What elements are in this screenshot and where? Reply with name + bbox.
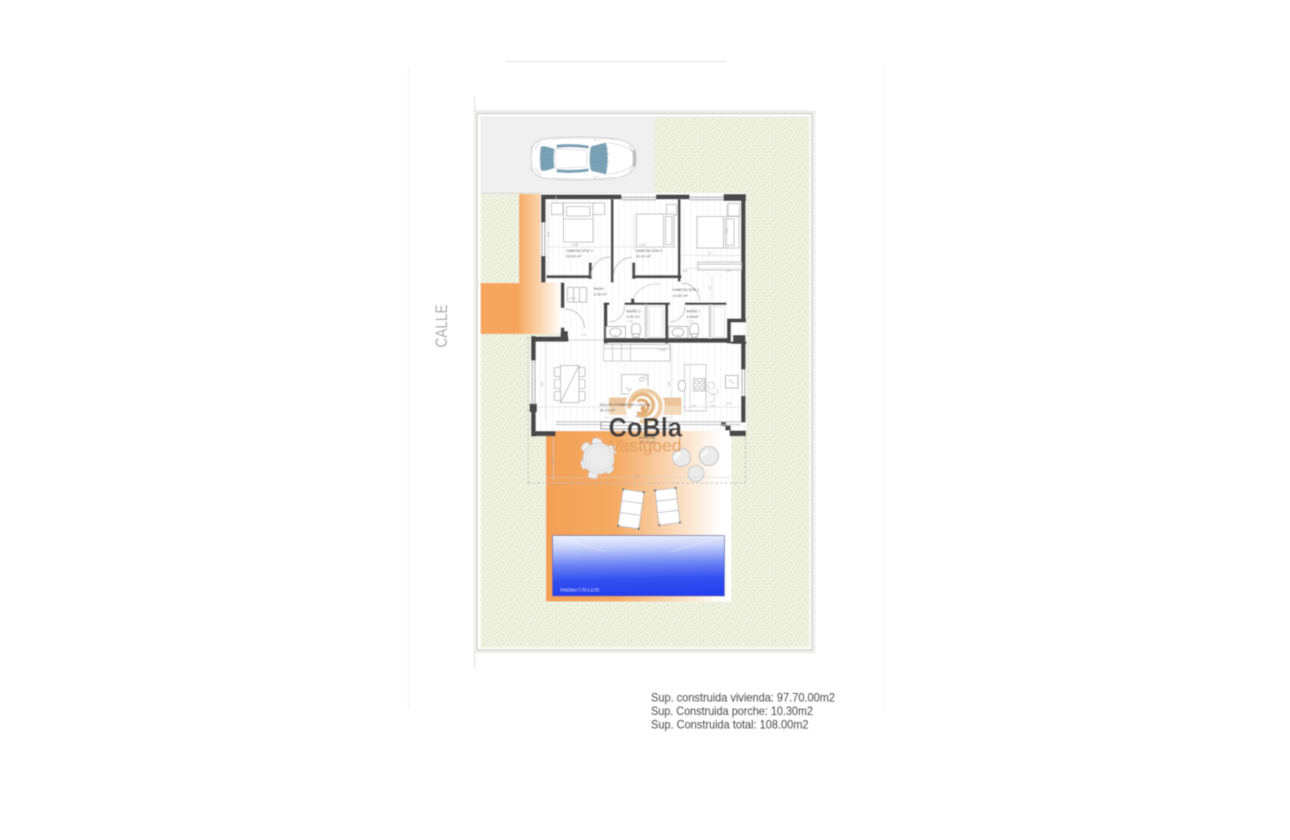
svg-text:BAÑO 2: BAÑO 2 — [627, 309, 641, 314]
svg-text:Sup. Construida porche: 10.30m: Sup. Construida porche: 10.30m2 — [651, 705, 813, 718]
svg-text:10.00 m²: 10.00 m² — [566, 254, 582, 259]
svg-text:CALLE: CALLE — [432, 305, 451, 348]
svg-text:HABITACIÓN 3: HABITACIÓN 3 — [566, 248, 593, 253]
svg-text:1.6: 1.6 — [582, 333, 587, 337]
svg-text:HABITACIÓN 1: HABITACIÓN 1 — [673, 287, 700, 292]
svg-text:0.6: 0.6 — [727, 402, 732, 406]
svg-text:2.86: 2.86 — [572, 243, 579, 247]
svg-text:Sup. construida vivienda: 97.7: Sup. construida vivienda: 97.70.00m2 — [651, 692, 835, 705]
svg-text:2.5: 2.5 — [551, 459, 555, 464]
svg-text:2.7: 2.7 — [708, 252, 713, 256]
svg-text:2.8: 2.8 — [725, 228, 729, 233]
svg-text:3.6: 3.6 — [667, 382, 671, 387]
svg-text:3.4: 3.4 — [546, 232, 550, 237]
svg-text:PASO: PASO — [594, 286, 605, 291]
svg-text:HABITACIÓN 2: HABITACIÓN 2 — [636, 248, 663, 253]
svg-text:2.70: 2.70 — [688, 320, 695, 324]
svg-text:8.3: 8.3 — [635, 475, 640, 479]
svg-text:VANO: VANO — [569, 297, 576, 301]
svg-text:1.0: 1.0 — [708, 286, 712, 291]
svg-text:0.8: 0.8 — [683, 269, 688, 273]
svg-text:4.60: 4.60 — [659, 348, 666, 352]
svg-text:Vastgoed: Vastgoed — [610, 436, 682, 456]
svg-text:0.9: 0.9 — [711, 404, 716, 408]
svg-text:14.50 m²: 14.50 m² — [673, 293, 689, 298]
svg-text:10.10 m²: 10.10 m² — [636, 254, 652, 259]
svg-text:4.00m²: 4.00m² — [687, 314, 700, 319]
svg-text:2.60: 2.60 — [627, 320, 634, 324]
svg-text:2.04: 2.04 — [639, 243, 646, 247]
svg-text:PISCINA 7.70 x 2.70: PISCINA 7.70 x 2.70 — [561, 588, 600, 593]
svg-text:SALÓN-COMEDOR-COCINA: SALÓN-COMEDOR-COCINA — [600, 402, 652, 407]
svg-text:Sup. Construida total: 108.00m: Sup. Construida total: 108.00m2 — [651, 718, 809, 731]
svg-text:BAÑO 1: BAÑO 1 — [687, 309, 701, 314]
svg-text:4.00 m²: 4.00 m² — [627, 314, 641, 319]
svg-text:0.9: 0.9 — [692, 404, 697, 408]
svg-text:3.30 m²: 3.30 m² — [594, 292, 608, 297]
svg-text:3.6: 3.6 — [540, 382, 544, 387]
svg-text:1.8: 1.8 — [726, 269, 731, 273]
